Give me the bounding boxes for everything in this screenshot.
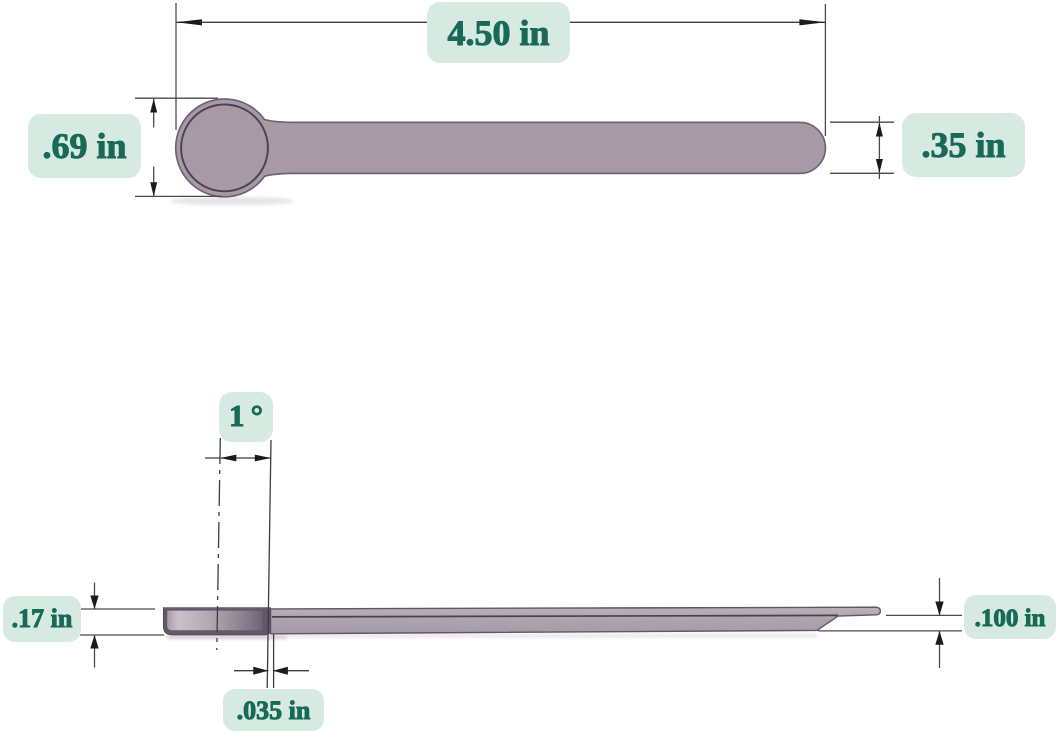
svg-text:1 °: 1 °: [229, 398, 263, 433]
svg-text:.17 in: .17 in: [12, 604, 73, 633]
svg-text:.100 in: .100 in: [975, 605, 1046, 632]
svg-text:.69 in: .69 in: [42, 126, 126, 166]
svg-text:.35 in: .35 in: [921, 125, 1005, 165]
svg-text:4.50 in: 4.50 in: [447, 13, 549, 53]
svg-text:.035 in: .035 in: [237, 696, 311, 725]
